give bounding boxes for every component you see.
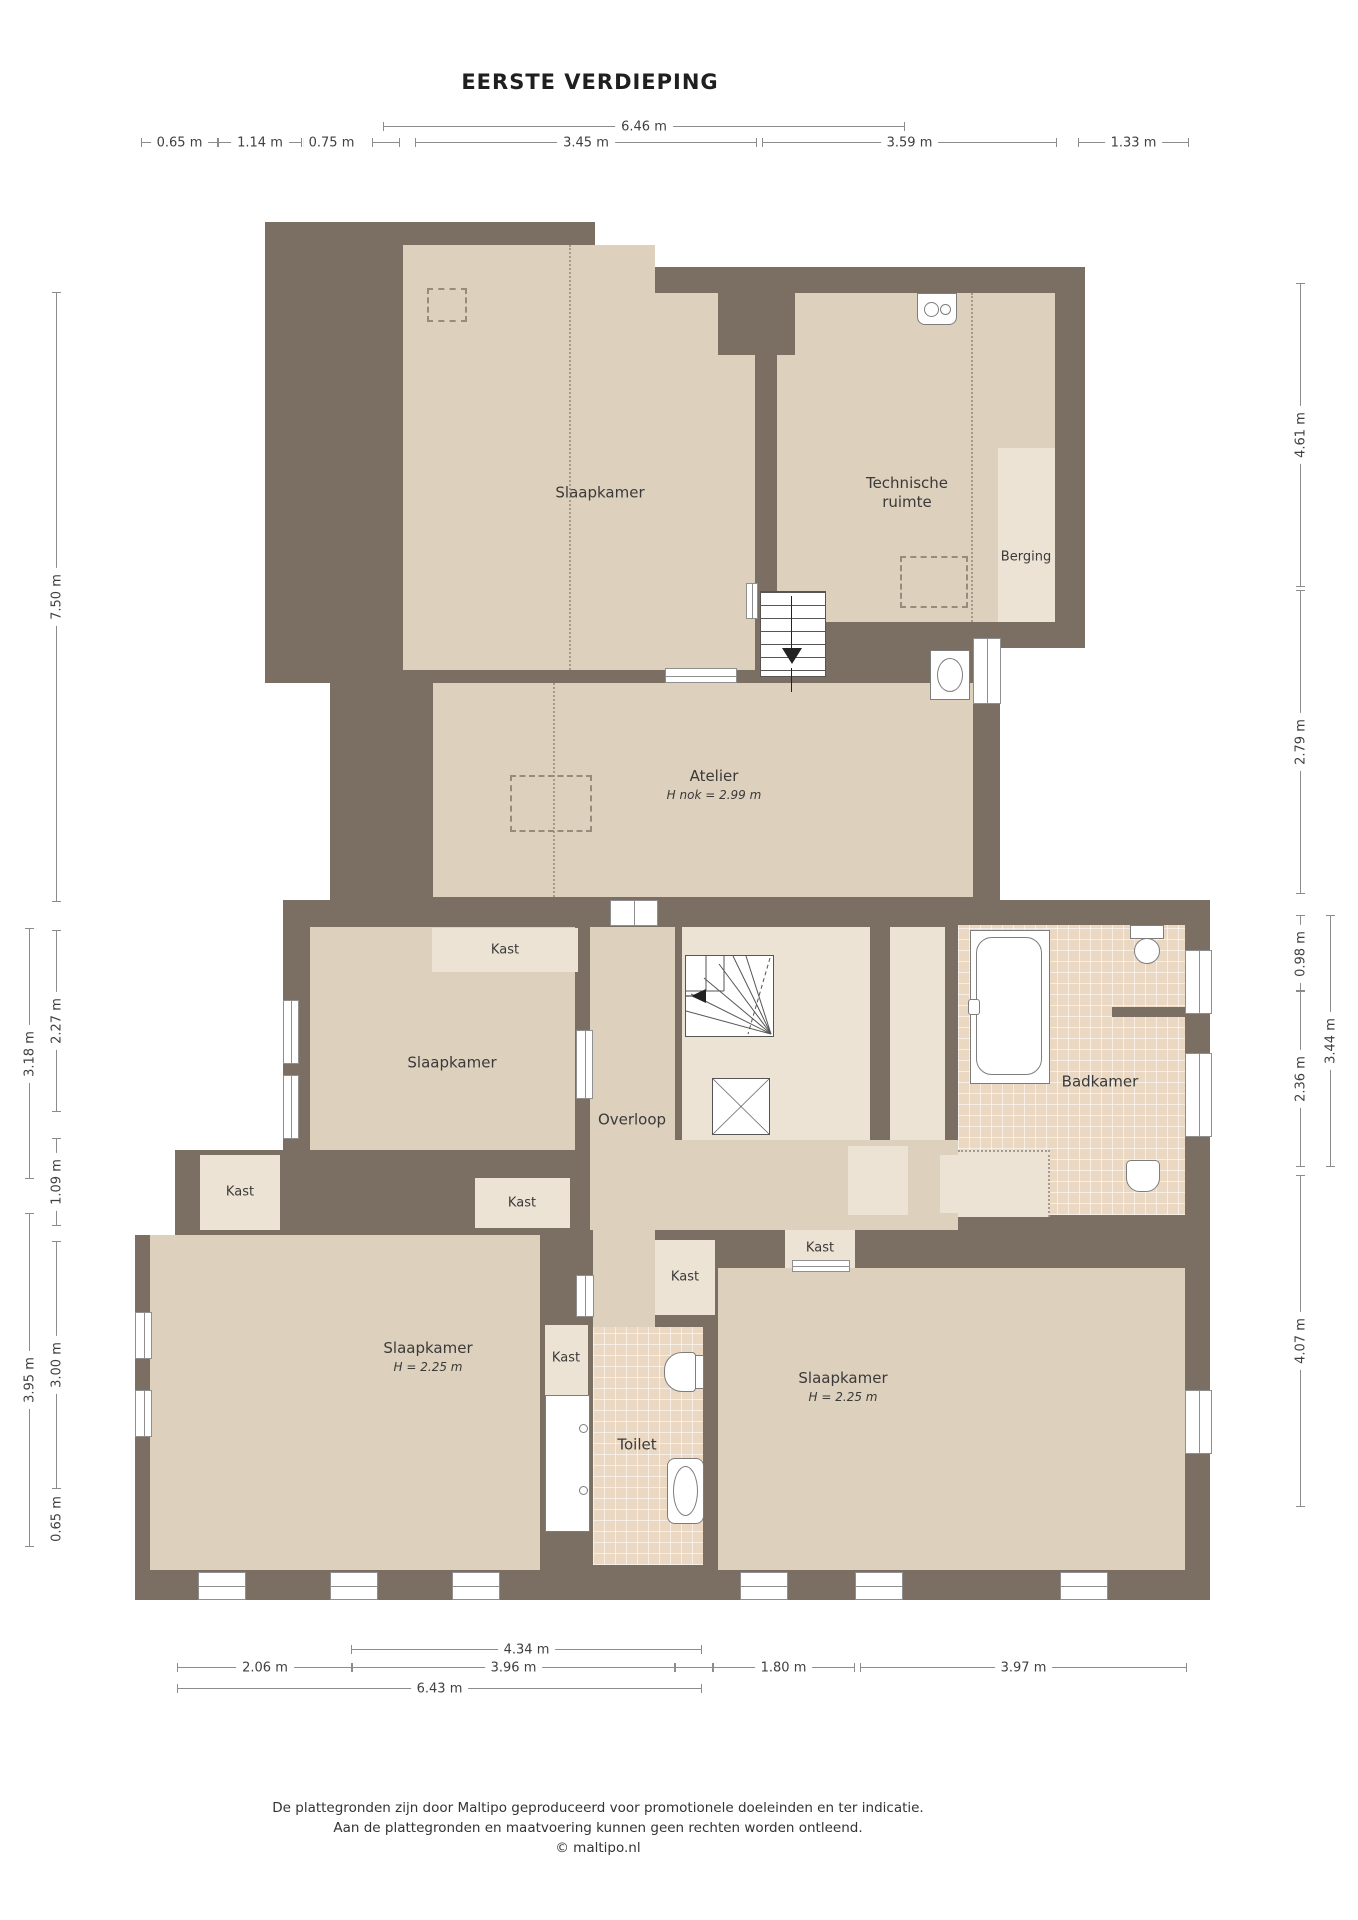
sink-icon [1130, 925, 1164, 939]
dimension-top: 3.45 m [415, 138, 757, 147]
window [135, 1312, 152, 1359]
stairs-direction-line [791, 668, 792, 692]
skylight-dashed [510, 775, 592, 832]
room-floor-hall-stub [593, 1230, 655, 1327]
dimension-bottom: 2.06 m [177, 1663, 353, 1672]
dimension-left: 3.00 m [52, 1241, 61, 1489]
shaft-icon [712, 1078, 770, 1135]
stairs-direction-line [791, 596, 792, 650]
window [740, 1572, 788, 1600]
dimension-top: 1.14 m [218, 138, 302, 147]
room-label-atelier: AtelierH nok = 2.99 m [667, 767, 762, 805]
berging-floor [998, 448, 1055, 622]
wall-stub [1112, 1007, 1185, 1017]
dimension-left: 0.65 m [52, 1490, 61, 1547]
window [1185, 950, 1212, 1014]
dimension-line [674, 1663, 714, 1672]
bathtub-icon [970, 930, 1050, 1084]
faucet-icon [968, 999, 980, 1015]
room-floor-slaapkamer-left [150, 1235, 540, 1570]
footer-line-3: © maltipo.nl [0, 1838, 1196, 1858]
room-label-kast: Kast [508, 1194, 536, 1213]
skylight-dashed [427, 288, 467, 322]
dimension-right: 2.36 m [1296, 990, 1305, 1167]
skylight-dashed [900, 556, 968, 608]
fixture-alcove [545, 1395, 590, 1532]
sink-icon [930, 650, 970, 700]
floorplan-page: EERSTE VERDIEPING [0, 0, 1358, 1920]
dimension-right: 3.44 m [1326, 915, 1335, 1167]
window [198, 1572, 246, 1600]
dimension-bottom: 1.80 m [712, 1663, 855, 1672]
roof-line [569, 245, 571, 670]
roof-line [971, 293, 973, 622]
room-label-slaapkamer-top: Slaapkamer [555, 484, 644, 503]
footer-line-1: De plattegronden zijn door Maltipo gepro… [0, 1798, 1196, 1818]
door-window [792, 1260, 850, 1272]
faucet-icon [579, 1424, 588, 1433]
boiler-icon [917, 293, 957, 325]
door-window [610, 900, 658, 926]
dimension-top: 3.59 m [762, 138, 1057, 147]
dimension-left: 7.50 m [52, 292, 61, 902]
window [135, 1390, 152, 1437]
footer-disclaimer: De plattegronden zijn door Maltipo gepro… [0, 1798, 1196, 1858]
toilet-tank [695, 1355, 704, 1389]
room-label-technische-ruimte: Technischeruimte [866, 474, 948, 512]
dimension-bottom: 3.96 m [351, 1663, 676, 1672]
room-label-slaapkamer-right: SlaapkamerH = 2.25 m [798, 1369, 887, 1407]
sink-icon [667, 1458, 704, 1524]
door-window [576, 1030, 593, 1099]
window [855, 1572, 903, 1600]
sink-icon [1134, 938, 1160, 964]
room-floor-overloop [590, 927, 675, 1140]
dimension-top: 0.65 m [141, 138, 218, 147]
window [1060, 1572, 1108, 1600]
window [283, 1000, 299, 1064]
dimension-top: 6.46 m [383, 122, 905, 131]
badkamer-corner-closet [958, 1150, 1050, 1217]
window [746, 583, 758, 619]
room-label-slaapkamer-left: SlaapkamerH = 2.25 m [383, 1339, 472, 1377]
dimension-left: 3.18 m [25, 928, 34, 1179]
dimension-bottom: 4.34 m [351, 1645, 702, 1654]
dimension-right: 0.98 m [1296, 915, 1305, 992]
dimension-right: 4.07 m [1296, 1175, 1305, 1507]
window [452, 1572, 500, 1600]
room-label-kast: Kast [671, 1268, 699, 1287]
window [283, 1075, 299, 1139]
badkamer-door-gap [940, 1155, 958, 1213]
window [330, 1572, 378, 1600]
window [665, 668, 737, 683]
dimension-top: 0.75 m [303, 138, 360, 147]
window [973, 638, 1001, 704]
room-label-slaapkamer-mid: Slaapkamer [407, 1054, 496, 1073]
window [1185, 1390, 1212, 1454]
room-label-berging: Berging [1001, 548, 1051, 567]
bidet-icon [1126, 1160, 1160, 1192]
stairs-up-icon [760, 591, 826, 677]
dimension-right: 4.61 m [1296, 283, 1305, 587]
footer-line-2: Aan de plattegronden en maatvoering kunn… [0, 1818, 1196, 1838]
stairs-down-arrow-icon [782, 648, 802, 664]
room-label-kast: Kast [806, 1239, 834, 1258]
room-floor-closet-sliver [890, 927, 945, 1140]
toilet-icon [664, 1352, 696, 1392]
dimension-line [372, 138, 400, 147]
dimension-left: 1.09 m [52, 1138, 61, 1226]
wall [330, 683, 433, 925]
kast-floor [848, 1146, 908, 1215]
window [1185, 1053, 1212, 1137]
room-label-kast: Kast [552, 1349, 580, 1368]
room-label-kast: Kast [491, 941, 519, 960]
dimension-right: 2.79 m [1296, 590, 1305, 894]
room-label-kast: Kast [226, 1183, 254, 1202]
room-label-overloop: Overloop [598, 1111, 666, 1130]
dimension-bottom: 3.97 m [860, 1663, 1187, 1672]
dimension-left: 3.95 m [25, 1213, 34, 1547]
stairs-winder-icon [685, 955, 774, 1037]
dimension-bottom: 6.43 m [177, 1684, 702, 1693]
room-floor-slaapkamer-right [718, 1268, 1185, 1570]
room-label-badkamer: Badkamer [1062, 1073, 1139, 1092]
door-window [576, 1275, 594, 1317]
wall-pier [718, 267, 795, 355]
room-label-toilet: Toilet [617, 1436, 656, 1455]
dimension-top: 1.33 m [1078, 138, 1189, 147]
faucet-icon [579, 1486, 588, 1495]
page-title: EERSTE VERDIEPING [461, 70, 718, 94]
dimension-left: 2.27 m [52, 930, 61, 1112]
